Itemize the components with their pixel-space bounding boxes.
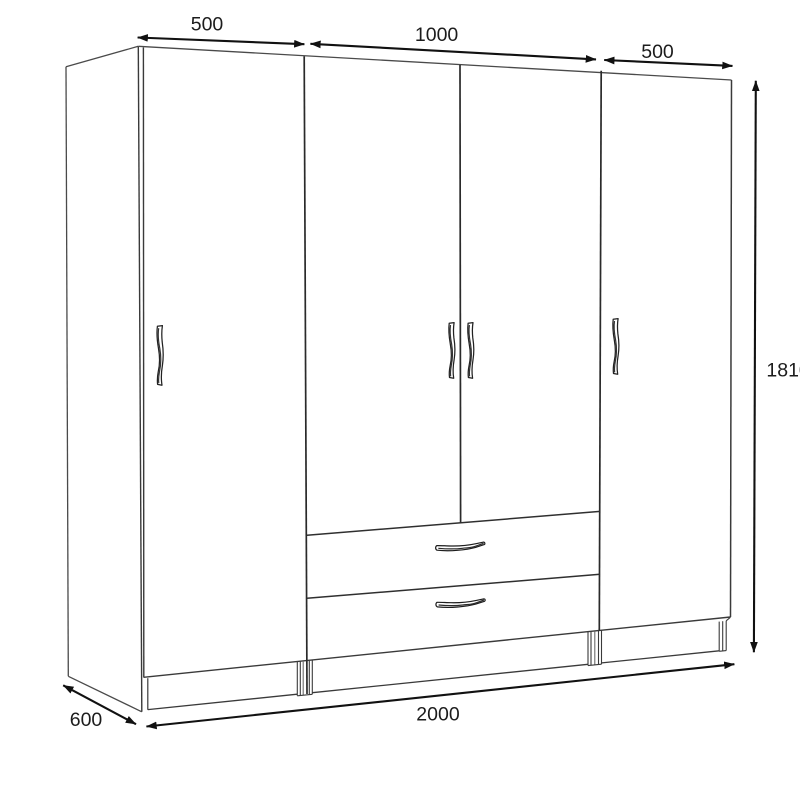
svg-text:1000: 1000	[415, 24, 459, 46]
svg-text:600: 600	[70, 709, 103, 731]
svg-text:1810: 1810	[766, 360, 800, 382]
svg-text:2000: 2000	[416, 704, 460, 726]
svg-text:500: 500	[641, 41, 674, 63]
svg-text:500: 500	[191, 14, 224, 36]
